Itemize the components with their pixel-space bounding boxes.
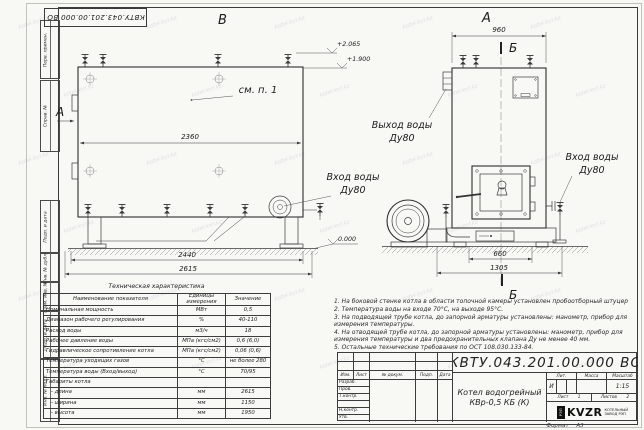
valve-icon: [527, 56, 534, 69]
sheets-label: Листов: [601, 395, 617, 400]
furnace-door: [456, 166, 535, 219]
row-utv: Утв.: [338, 415, 370, 422]
sheet-label: Лист: [558, 395, 569, 400]
valve-icon: [285, 55, 292, 68]
valve-icon: [119, 205, 126, 218]
tech-table-row: Рабочее давление водыМПа (кгс/см2)0,6 (6…: [44, 336, 271, 346]
valve-icon: [473, 56, 480, 69]
tech-table-cell: 2615: [226, 388, 271, 398]
row-nkontr: Н.контр.: [338, 408, 370, 415]
view-letter-a: А: [481, 11, 491, 26]
tech-table-row: Температура уходящих газов°Сне более 280: [44, 357, 271, 367]
tech-table-row: Гидравлическое сопротивление котлаМПа (к…: [44, 347, 271, 357]
valve-icon: [164, 205, 171, 218]
side-dimensions: 2360 2440 2615: [65, 133, 312, 278]
tech-table-row: Температура воды (Вход/выход)°С70/95: [44, 367, 271, 377]
dim-2440: 2440: [178, 251, 196, 259]
ground-hatch: [382, 247, 588, 253]
designation-cell: КВТУ.043.201.00.000 ВО: [453, 353, 638, 373]
side-view: [68, 55, 324, 256]
tech-table-cell: [178, 378, 226, 388]
valve-icon: [85, 205, 92, 218]
tech-table-title: Техническая характеристика: [43, 283, 270, 290]
tech-table-row: Диапазон рабочего регулирования%40-110: [44, 316, 271, 326]
col-list: Лист: [354, 371, 370, 380]
tech-table-cell: 0,06 (0,6): [226, 347, 271, 357]
valve-icon: [215, 55, 222, 68]
tech-table-cell: Гидравлическое сопротивление котла: [44, 347, 178, 357]
valve-icon: [443, 205, 450, 218]
scale-label: Масштаб: [607, 373, 638, 380]
lit-label: Лит.: [547, 373, 577, 380]
valve-icon: [557, 203, 564, 216]
tech-table-cell: 0,6 (6,0): [226, 336, 271, 346]
sig-col: [370, 380, 416, 422]
sheets-value: 2: [626, 395, 629, 400]
designation-text: КВТУ.043.201.00.000 ВО: [453, 355, 638, 371]
tech-table-cell: 70/95: [226, 367, 271, 377]
product-name-line1: Котел водогрейный: [458, 388, 542, 398]
view-letter-v: В: [218, 13, 227, 28]
dim-2615: 2615: [179, 265, 197, 273]
tech-table-cell: мм: [178, 398, 226, 408]
tech-table-cell: - длина: [44, 388, 178, 398]
front-view: [382, 46, 588, 285]
tech-table-cell: 1150: [226, 398, 271, 408]
tech-table-header: Наименование показателя Единицы измерени…: [44, 294, 271, 306]
inlet-side-label-2: Ду80: [339, 185, 365, 196]
rev-cell: [370, 353, 416, 362]
tech-table-row: Расход водым3/ч18: [44, 326, 271, 336]
row-prov: Пров.: [338, 387, 370, 394]
sheet-cell: Лист 1: [547, 394, 592, 402]
tech-table-cell: 1950: [226, 409, 271, 419]
outlet-label-2: Ду80: [388, 133, 414, 144]
col-izm: Изм.: [338, 371, 354, 380]
tech-table-cell: - ширина: [44, 398, 178, 408]
tech-table-cell: 0,5: [226, 306, 271, 316]
tech-table-cell: [226, 378, 271, 388]
drawing-sheet: kotel-kvr.kzkotel-kvr.kzkotel-kvr.kzkote…: [0, 0, 644, 430]
mass-value: [577, 380, 607, 394]
tech-table: Наименование показателя Единицы измерени…: [43, 293, 271, 419]
tech-table-cell: МВт: [178, 306, 226, 316]
note-line: 4. На отводящей трубе котла, до запорной…: [334, 329, 635, 344]
elevation-top: +2.065: [337, 41, 360, 48]
tech-table-cell: м3/ч: [178, 326, 226, 336]
logo-text: KVZR: [567, 406, 602, 419]
outlet-label-1: Выход воды: [372, 120, 433, 131]
tech-header-name: Наименование показателя: [44, 294, 178, 306]
note-line: 5. Остальные технические требования по О…: [334, 344, 635, 351]
callouts: см. п. 1 Выход воды Ду80 Вход воды Ду80 …: [191, 85, 619, 206]
lit-cell3: [567, 380, 577, 394]
rev-cell: [354, 362, 370, 371]
title-block: КВТУ.043.201.00.000 ВО Изм. Лист № докум…: [337, 352, 637, 421]
dim-660: 660: [493, 250, 507, 258]
tech-table-row: - высотамм1950: [44, 409, 271, 419]
tech-table-cell: Температура воды (Вход/выход): [44, 367, 178, 377]
valve-icon: [242, 205, 249, 218]
row-razrab: Разраб.: [338, 380, 370, 387]
sheets-cell: Листов 2: [592, 394, 638, 402]
tech-table-cell: Расход воды: [44, 326, 178, 336]
note-line: 1. На боковой стенке котла в области топ…: [334, 298, 635, 305]
dim-1305: 1305: [490, 264, 508, 272]
company-logo: РЭП KVZR КОТЕЛЬНЫЙ ЗАВОД РЭП: [547, 402, 638, 422]
blower-fan: [387, 200, 447, 247]
scale-value: 1:15: [607, 380, 638, 394]
tech-table-cell: 18: [226, 326, 271, 336]
inlet-flange-side: [269, 196, 291, 218]
valve-icon: [100, 55, 107, 68]
dim-960: 960: [492, 26, 506, 34]
format-note: Формат А3: [500, 423, 630, 429]
tech-header-value: Значение: [226, 294, 271, 306]
product-name-line2: КВр-0,5 КБ (К): [458, 398, 542, 408]
product-name-cell: Котел водогрейный КВр-0,5 КБ (К): [453, 373, 547, 422]
view-letter-a-side: А: [55, 105, 64, 119]
tech-table-body: Номинальная мощностьМВт0,5Диапазон рабоч…: [44, 306, 271, 419]
rev-cell: [416, 353, 438, 362]
tech-table-cell: не более 280: [226, 357, 271, 367]
elevation-mid: +1.900: [347, 56, 370, 63]
control-panel: [513, 77, 538, 98]
rev-cell: [338, 362, 354, 371]
col-dokum: № докум.: [370, 371, 416, 380]
tech-table-cell: мм: [178, 388, 226, 398]
company-line2: ЗАВОД РЭП: [604, 412, 628, 416]
tech-table-cell: °С: [178, 367, 226, 377]
valve-icon: [460, 56, 467, 69]
rev-cell: [416, 362, 438, 371]
sig-col: [438, 380, 453, 422]
rev-cell: [338, 353, 354, 362]
note-line: 2. Температура воды на входе 70°С, на вы…: [334, 306, 635, 313]
rev-cell: [438, 353, 453, 362]
tech-table-row: - длинамм2615: [44, 388, 271, 398]
valve-icon: [82, 55, 89, 68]
elevation-marks: +2.065 +1.900 0.000: [296, 41, 370, 248]
section-letter-b-top: Б: [509, 41, 517, 55]
inlet-front-label-1: Вход воды: [565, 152, 619, 163]
inlet-side-label-1: Вход воды: [326, 172, 380, 183]
tech-table-cell: МПа (кгс/см2): [178, 336, 226, 346]
note-line: 3. На подводящей трубе котла, до запорно…: [334, 314, 635, 329]
logo-cell: РЭП KVZR КОТЕЛЬНЫЙ ЗАВОД РЭП: [547, 402, 638, 422]
inlet-front-label-2: Ду80: [578, 165, 604, 176]
tech-table-cell: МПа (кгс/см2): [178, 347, 226, 357]
tech-table-cell: Диапазон рабочего регулирования: [44, 316, 178, 326]
tech-table-cell: °С: [178, 357, 226, 367]
logo-mark-text: РЭП: [559, 408, 563, 416]
dim-2360: 2360: [181, 133, 199, 141]
logo-mark-icon: РЭП: [557, 406, 565, 419]
tech-table-row: Габариты котла: [44, 378, 271, 388]
tech-table-cell: мм: [178, 409, 226, 419]
row-tkontr: Т.контр.: [338, 394, 370, 401]
tech-table-cell: 40-110: [226, 316, 271, 326]
tech-table-row: Номинальная мощностьМВт0,5: [44, 306, 271, 316]
rev-cell: [438, 362, 453, 371]
front-dimensions: 960 660 1305: [437, 26, 562, 277]
tech-table-cell: Габариты котла: [44, 378, 178, 388]
row-empty: [338, 401, 370, 408]
tech-table-cell: Рабочее давление воды: [44, 336, 178, 346]
tech-table-cell: Номинальная мощность: [44, 306, 178, 316]
tech-table-cell: %: [178, 316, 226, 326]
outlet-flange-front: [443, 72, 452, 90]
rev-cell: [354, 353, 370, 362]
col-data: Дата: [438, 371, 453, 380]
tech-header-units: Единицы измерения: [178, 294, 226, 306]
elevation-zero: 0.000: [338, 236, 356, 243]
lit-cell2: [557, 380, 567, 394]
col-podp: Подп.: [416, 371, 438, 380]
format-value: А3: [576, 423, 583, 429]
mass-label: Масса: [577, 373, 607, 380]
see-note-label: см. п. 1: [239, 85, 278, 96]
lit-value: И: [547, 380, 557, 394]
notes: 1. На боковой стенке котла в области топ…: [334, 298, 635, 352]
rev-cell: [370, 362, 416, 371]
tech-table-cell: Температура уходящих газов: [44, 357, 178, 367]
sig-col: [416, 380, 438, 422]
sheet-value: 1: [578, 395, 581, 400]
valve-icon: [317, 204, 324, 217]
format-label: Формат: [546, 423, 568, 429]
tech-table-row: - ширинамм1150: [44, 398, 271, 408]
valve-icon: [207, 205, 214, 218]
tech-table-cell: - высота: [44, 409, 178, 419]
